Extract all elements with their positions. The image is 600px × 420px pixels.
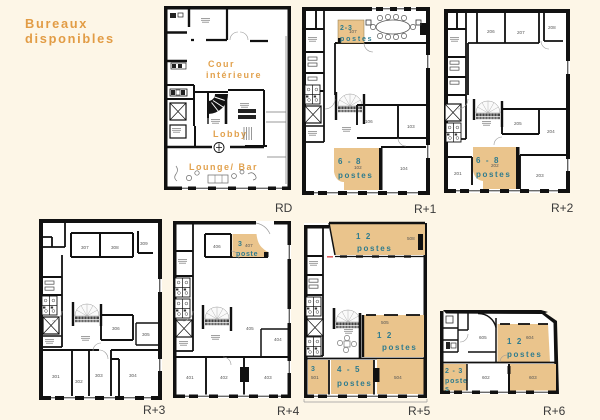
- svg-text:301: 301: [52, 374, 60, 379]
- svg-text:304: 304: [129, 373, 137, 378]
- svg-text:201: 201: [454, 171, 462, 176]
- svg-text:501: 501: [311, 375, 319, 380]
- svg-text:303: 303: [95, 373, 103, 378]
- svg-text:603: 603: [529, 375, 537, 380]
- svg-text:604: 604: [526, 335, 534, 340]
- svg-text:407: 407: [245, 243, 253, 248]
- svg-text:3: 3: [238, 241, 243, 248]
- svg-text:203: 203: [536, 173, 544, 178]
- svg-text:Cour: Cour: [208, 59, 235, 69]
- svg-text:307: 307: [81, 245, 89, 250]
- svg-text:poste: poste: [445, 378, 468, 385]
- svg-text:106: 106: [365, 119, 373, 124]
- svg-text:R+5: R+5: [408, 404, 431, 418]
- svg-text:208: 208: [548, 25, 556, 30]
- svg-text:202: 202: [491, 163, 499, 168]
- svg-text:104: 104: [400, 166, 408, 171]
- svg-text:206: 206: [487, 29, 495, 34]
- svg-text:postes: postes: [476, 170, 511, 179]
- svg-text:306: 306: [112, 326, 120, 331]
- svg-text:103: 103: [407, 124, 415, 129]
- svg-text:3: 3: [311, 366, 316, 373]
- svg-text:Bureaux: Bureaux: [25, 16, 88, 31]
- svg-text:R+4: R+4: [277, 404, 300, 418]
- svg-text:disponibles: disponibles: [25, 31, 115, 46]
- svg-text:505: 505: [381, 320, 389, 325]
- svg-text:309: 309: [140, 241, 148, 246]
- svg-text:402: 402: [220, 375, 228, 380]
- svg-text:postes: postes: [382, 343, 417, 352]
- svg-text:postes: postes: [507, 350, 542, 359]
- svg-text:1 2: 1 2: [507, 337, 523, 346]
- svg-text:102: 102: [354, 165, 362, 170]
- svg-text:305: 305: [142, 332, 150, 337]
- svg-text:R+2: R+2: [551, 201, 574, 215]
- svg-text:205: 205: [514, 121, 522, 126]
- svg-text:404: 404: [274, 337, 282, 342]
- svg-text:302: 302: [75, 379, 83, 384]
- svg-text:postes: postes: [340, 36, 373, 43]
- svg-text:401: 401: [186, 375, 194, 380]
- svg-text:RD: RD: [275, 201, 293, 215]
- svg-text:405: 405: [246, 326, 254, 331]
- svg-text:postes: postes: [357, 244, 392, 253]
- svg-text:602: 602: [482, 375, 490, 380]
- svg-text:postes: postes: [337, 379, 372, 388]
- svg-text:1 2: 1 2: [377, 331, 393, 340]
- svg-text:403: 403: [264, 375, 272, 380]
- svg-text:1 2: 1 2: [356, 232, 372, 241]
- svg-text:107: 107: [349, 29, 357, 34]
- svg-text:poste: poste: [236, 251, 258, 258]
- svg-text:204: 204: [547, 129, 555, 134]
- svg-text:postes: postes: [338, 171, 373, 180]
- svg-text:406: 406: [213, 244, 221, 249]
- svg-text:s: s: [445, 386, 450, 393]
- svg-text:504: 504: [394, 375, 402, 380]
- svg-text:605: 605: [479, 335, 487, 340]
- svg-text:2 - 3: 2 - 3: [445, 368, 463, 375]
- svg-text:R+6: R+6: [543, 404, 566, 418]
- svg-text:intérieure: intérieure: [206, 70, 262, 80]
- svg-text:R+3: R+3: [143, 403, 166, 417]
- svg-text:508: 508: [407, 236, 415, 241]
- svg-text:Lobby: Lobby: [213, 129, 248, 139]
- svg-text:R+1: R+1: [414, 202, 437, 216]
- svg-text:207: 207: [517, 30, 525, 35]
- svg-text:Lounge/ Bar: Lounge/ Bar: [189, 162, 258, 172]
- svg-text:308: 308: [111, 245, 119, 250]
- svg-text:4 - 5: 4 - 5: [337, 365, 361, 374]
